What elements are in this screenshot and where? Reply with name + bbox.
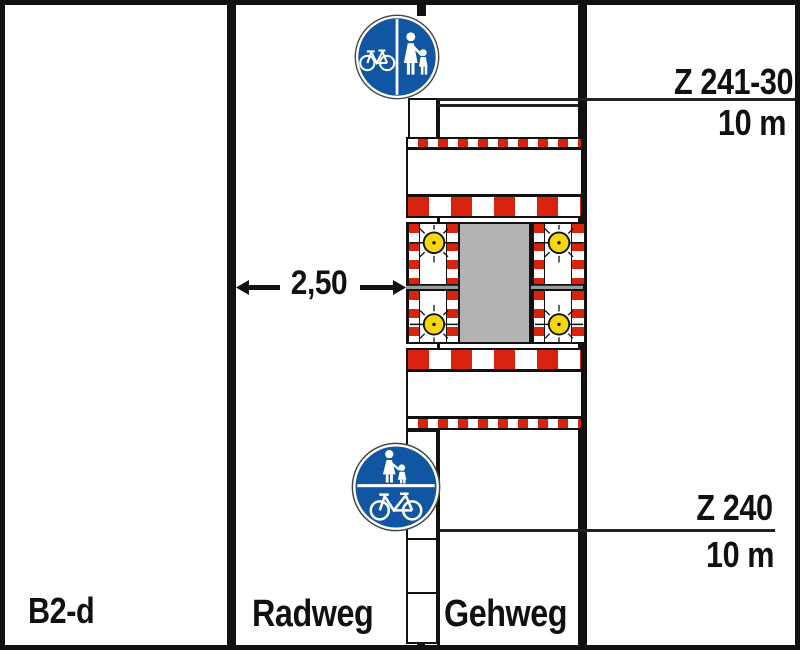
lane-divider-thick-left — [227, 0, 236, 650]
top-sign-distance-label: 10 m — [718, 104, 786, 142]
barrier-panel-bottom — [406, 370, 583, 418]
dimension-width-value: 2,50 — [285, 266, 354, 302]
barrier-panel-top — [406, 148, 583, 196]
warning-lamp-icon — [533, 224, 585, 284]
dimension-arrow-right-icon — [360, 280, 406, 295]
vertical-divider — [396, 19, 399, 95]
dimension-arrow-left-icon — [236, 280, 280, 295]
barrier-board-thick-bottom — [406, 348, 583, 371]
bottom-sign-distance-label: 10 m — [706, 536, 774, 574]
cycle-lane-label: Radweg — [252, 595, 373, 635]
barrier-beacon-unit — [406, 289, 462, 344]
top-sign-ref-label: Z 241-30 — [674, 63, 793, 101]
plan-code-label: B2-d — [28, 592, 94, 630]
barrier-board-thin-bottom — [406, 417, 583, 430]
work-zone-barrier — [406, 137, 583, 430]
barrier-board-thick-top — [406, 195, 583, 218]
warning-lamp-icon — [533, 291, 585, 342]
leader-line-bottom-sign — [440, 529, 775, 532]
regelplan-diagram: 2,50 Z 241-30 10 m Z 240 10 m B2-d Radwe… — [0, 0, 800, 650]
warning-lamp-icon — [408, 224, 460, 284]
barrier-beacon-unit — [531, 222, 587, 286]
barrier-beacon-unit — [531, 289, 587, 344]
horizontal-divider — [357, 484, 434, 487]
bottom-sign-ref-label: Z 240 — [697, 489, 773, 527]
warning-lamp-icon — [408, 291, 460, 342]
work-area — [458, 222, 531, 344]
leader-line-barrier-top — [438, 104, 578, 107]
barrier-beacon-unit — [406, 222, 462, 286]
foot-lane-label: Gehweg — [444, 595, 567, 635]
sign-z241-30 — [354, 14, 440, 100]
sign-z240 — [351, 442, 441, 532]
sign-post-top — [408, 98, 438, 139]
